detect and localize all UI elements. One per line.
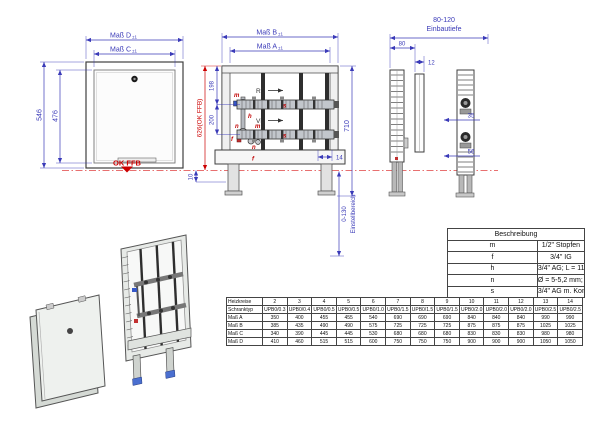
table-cell: 515	[312, 338, 337, 346]
dim-546-value: 546	[37, 109, 44, 121]
table-cell: 435	[287, 322, 312, 330]
table-row: Maß C34039044544553068068068083083083098…	[227, 330, 583, 338]
table-cell: 445	[336, 330, 361, 338]
table-row: Maß A35040045545554069069069084084084099…	[227, 314, 583, 322]
table-cell: 1050	[558, 338, 583, 346]
legend-title-row: Beschreibung	[448, 229, 585, 241]
table-row: nØ = 5-5,2 mm; M10 x 1	[448, 275, 585, 287]
table-cell: 680	[386, 330, 411, 338]
table-row: SchranktypUPB0/0.3UPB0/0.4UPB0/0.5UPB0/0…	[227, 306, 583, 314]
table-cell: UPB0/1.5	[386, 306, 411, 314]
table-cell: 750	[410, 338, 435, 346]
table-cell: 1025	[533, 322, 558, 330]
technical-drawing-page: Maß D ±1 Maß C ±1 546 476 OK FFB	[0, 0, 600, 425]
table-cell: 3/4" AG m. Konus	[537, 286, 584, 298]
front-view-closed-cabinet: Maß D ±1 Maß C ±1 546 476 OK FFB	[37, 33, 184, 173]
table-cell: 390	[287, 330, 312, 338]
table-cell: 840	[509, 314, 534, 322]
dim-198-value: 198	[210, 80, 216, 91]
depth-range-label: Einbautiefe	[426, 26, 461, 33]
dim-12: 12	[415, 56, 435, 72]
table-row: h3/4" AG; L = 110 mm	[448, 263, 585, 275]
dim-80: 80	[390, 34, 415, 72]
table-cell: 725	[386, 322, 411, 330]
dim-mass-a-label: Maß A	[257, 44, 278, 51]
table-cell: Maß B	[227, 322, 263, 330]
dim-mass-c-tol: ±1	[132, 49, 137, 54]
table-cell: 840	[459, 314, 484, 322]
table-row: f3/4" IG	[448, 252, 585, 264]
dim-10-value: 10	[189, 173, 195, 180]
iso-view-closed-cabinet	[30, 295, 105, 408]
table-cell: UPB0/2.5	[558, 306, 583, 314]
table-cell: 11	[484, 298, 509, 306]
dim-mass-d: Maß D ±1	[86, 33, 183, 60]
table-row: Maß D41046051551560075075075090090090010…	[227, 338, 583, 346]
part-label-n: n	[235, 124, 239, 130]
iso-view-open-frame	[121, 235, 191, 386]
right-leg	[321, 164, 332, 191]
table-cell: 14	[558, 298, 583, 306]
table-cell: 445	[312, 330, 337, 338]
table-cell: UPB0/0.3	[263, 306, 288, 314]
table-cell: 900	[509, 338, 534, 346]
table-cell: 1/2" Stopfen	[537, 240, 584, 252]
table-cell: 690	[386, 314, 411, 322]
left-leg	[228, 164, 239, 191]
dim-710: 710	[337, 66, 356, 196]
dim-626-value: 626(OK FFB)	[197, 99, 204, 138]
dim-710-value: 710	[344, 120, 351, 132]
table-cell: 400	[287, 314, 312, 322]
table-cell: 455	[336, 314, 361, 322]
table-cell: 1050	[533, 338, 558, 346]
part-label-m: m	[255, 124, 261, 130]
table-cell: 990	[558, 314, 583, 322]
leg-clamp	[395, 157, 398, 160]
table-cell: 515	[336, 338, 361, 346]
table-cell: 410	[263, 338, 288, 346]
table-cell: 12	[509, 298, 534, 306]
table-cell: 875	[459, 322, 484, 330]
table-cell: 455	[312, 314, 337, 322]
part-label-n: n	[252, 145, 256, 151]
dim-mass-d-tol: ±1	[132, 35, 137, 40]
table-row: Maß B38543549049057572572572587587587510…	[227, 322, 583, 330]
table-cell: UPB0/1.0	[361, 306, 386, 314]
table-cell: Ø = 5-5,2 mm; M10 x 1	[537, 275, 584, 287]
table-cell: 5	[336, 298, 361, 306]
table-cell: 680	[410, 330, 435, 338]
table-row: s3/4" AG m. Konus	[448, 286, 585, 298]
table-cell: 4	[312, 298, 337, 306]
table-cell: UPB0/0.5	[312, 306, 337, 314]
table-cell: 8	[410, 298, 435, 306]
table-cell: 6	[361, 298, 386, 306]
table-cell: UPB0/1.5	[435, 306, 460, 314]
table-cell: 3/4" AG; L = 110 mm	[537, 263, 584, 275]
dim-80-value: 80	[399, 42, 406, 48]
table-cell: 840	[484, 314, 509, 322]
table-row: m1/2" Stopfen	[448, 240, 585, 252]
dim-mass-b-tol: ±1	[278, 32, 283, 37]
table-cell: 680	[435, 330, 460, 338]
table-cell: 2	[263, 298, 288, 306]
dim-56-value: 56	[468, 150, 475, 156]
dim-mass-a-tol: ±1	[278, 46, 283, 51]
table-cell: UPB0/1.5	[410, 306, 435, 314]
table-cell: UPB0/2.5	[533, 306, 558, 314]
table-cell: UPB0/2.0	[509, 306, 534, 314]
table-cell: Maß C	[227, 330, 263, 338]
side-view-assembled: 35 56	[444, 70, 480, 197]
table-cell: Maß A	[227, 314, 263, 322]
table-cell: m	[448, 240, 538, 252]
table-cell: 750	[386, 338, 411, 346]
table-cell: 690	[410, 314, 435, 322]
table-cell: 530	[361, 330, 386, 338]
table-cell: 600	[361, 338, 386, 346]
table-cell: h	[448, 263, 538, 275]
adjust-range-label: Einstellbereich	[351, 194, 357, 233]
table-cell: 875	[484, 322, 509, 330]
table-cell: 9	[435, 298, 460, 306]
table-cell: 830	[484, 330, 509, 338]
table-cell: 980	[558, 330, 583, 338]
table-cell: 750	[435, 338, 460, 346]
table-cell: 3/4" IG	[537, 252, 584, 264]
legend-body: m1/2" Stopfenf3/4" IGh3/4" AG; L = 110 m…	[448, 240, 585, 298]
dim-einbautiefe: 80-120 Einbautiefe	[390, 17, 488, 44]
dim-mass-b-label: Maß B	[256, 30, 277, 37]
size-table-body: Heizkreise234567891011121314SchranktypUP…	[227, 298, 583, 346]
table-cell: 340	[263, 330, 288, 338]
dim-476-value: 476	[53, 110, 60, 122]
return-line-label: RL	[256, 88, 265, 95]
table-cell: s	[448, 286, 538, 298]
table-cell: 460	[287, 338, 312, 346]
dim-35-value: 35	[468, 114, 475, 120]
table-cell: 690	[435, 314, 460, 322]
dim-14-value: 14	[336, 156, 343, 162]
drawing-canvas: Maß D ±1 Maß C ±1 546 476 OK FFB	[0, 0, 600, 425]
table-cell: 725	[410, 322, 435, 330]
table-cell: UPB0/2.0	[459, 306, 484, 314]
iso-drain-valve	[134, 319, 138, 323]
table-cell: 900	[484, 338, 509, 346]
table-cell: f	[448, 252, 538, 264]
door-knob	[67, 328, 73, 334]
table-cell: 490	[336, 322, 361, 330]
table-cell: 875	[509, 322, 534, 330]
size-table: Heizkreise234567891011121314SchranktypUP…	[226, 297, 583, 346]
table-cell: 830	[459, 330, 484, 338]
table-cell: Schranktyp	[227, 306, 263, 314]
part-label-m: m	[234, 93, 240, 99]
table-cell: 10	[459, 298, 484, 306]
adjust-range-value: 0-130	[342, 206, 348, 222]
table-cell: 13	[533, 298, 558, 306]
table-cell: 385	[263, 322, 288, 330]
table-cell: 725	[435, 322, 460, 330]
table-cell: 7	[386, 298, 411, 306]
table-cell: 1025	[558, 322, 583, 330]
legend-title: Beschreibung	[448, 229, 585, 241]
dim-10: 10	[189, 171, 227, 183]
table-cell: 490	[312, 322, 337, 330]
part-label-h: h	[248, 114, 252, 120]
iso-valve-handle	[132, 288, 137, 292]
table-cell: UPB0/0.4	[287, 306, 312, 314]
dim-mass-d-label: Maß D	[110, 33, 131, 40]
table-cell: 830	[509, 330, 534, 338]
dim-mass-a: Maß A ±1	[230, 44, 330, 64]
dim-mass-c-label: Maß C	[110, 47, 131, 54]
table-cell: 540	[361, 314, 386, 322]
okffb-arrow-icon	[121, 167, 133, 173]
manifold-front-view: RL VL m h n m f n s s f Maß B ±1 Maß A ±…	[189, 30, 358, 257]
table-cell: 990	[533, 314, 558, 322]
table-cell: Maß D	[227, 338, 263, 346]
depth-range-value: 80-120	[433, 17, 455, 24]
table-cell: UPB0/0.5	[336, 306, 361, 314]
table-cell: Heizkreise	[227, 298, 263, 306]
table-cell: UPB0/2.0	[484, 306, 509, 314]
table-cell: n	[448, 275, 538, 287]
dim-adjust-range: 0-130 Einstellbereich	[330, 172, 357, 257]
legend-table: Beschreibung m1/2" Stopfenf3/4" IGh3/4" …	[447, 228, 585, 298]
table-cell: 3	[287, 298, 312, 306]
okffb-label: OK FFB	[113, 159, 141, 168]
table-row: Heizkreise234567891011121314	[227, 298, 583, 306]
table-cell: 575	[361, 322, 386, 330]
dim-200-value: 200	[210, 114, 216, 125]
table-cell: 900	[459, 338, 484, 346]
table-cell: 350	[263, 314, 288, 322]
table-cell: 980	[533, 330, 558, 338]
dim-12-value: 12	[428, 61, 435, 67]
